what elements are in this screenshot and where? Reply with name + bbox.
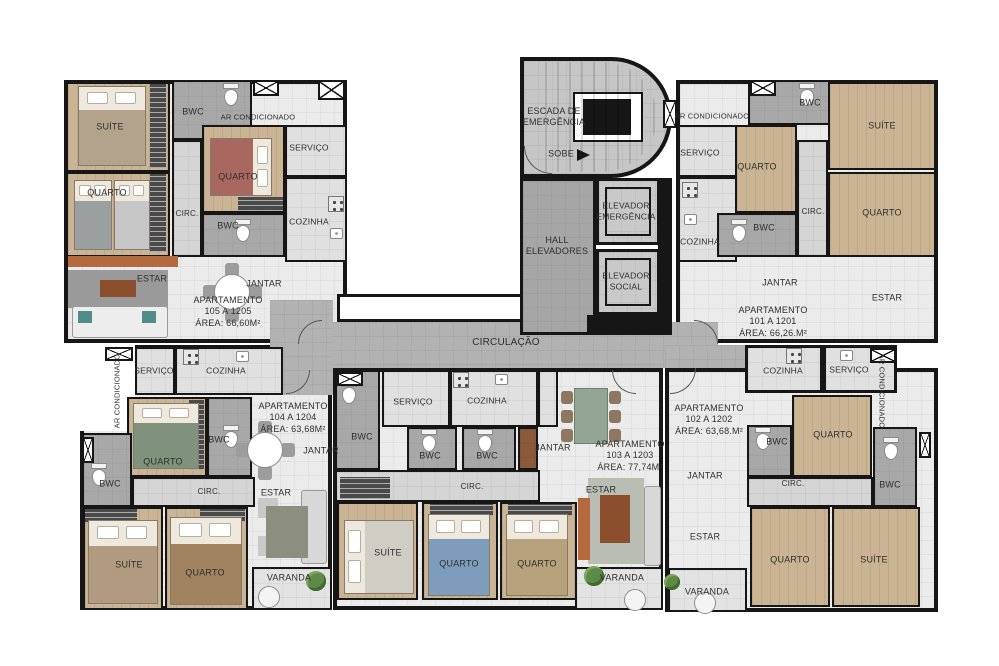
bed-pillow — [126, 526, 148, 539]
hatch-box — [870, 348, 896, 363]
bed-blanket — [429, 539, 489, 595]
bed — [344, 520, 414, 594]
rug — [266, 506, 308, 558]
table — [258, 586, 280, 608]
room-cozinha — [745, 345, 823, 393]
sink — [684, 214, 697, 225]
bed-pillow — [514, 520, 533, 533]
bed — [74, 180, 112, 250]
bed-pillow — [169, 408, 189, 418]
stove — [183, 349, 199, 365]
room-servico — [382, 370, 450, 427]
chair — [609, 391, 621, 404]
wall — [658, 178, 672, 335]
hatch-box — [105, 347, 133, 361]
sink — [495, 374, 508, 385]
bed-pillow — [461, 520, 480, 533]
room-nook — [538, 370, 558, 427]
room-bwc — [717, 213, 797, 257]
hatch-box — [82, 437, 94, 463]
bed-blanket — [507, 539, 567, 595]
bed-pillow — [87, 92, 108, 104]
bed — [133, 403, 199, 469]
hatch-box — [663, 100, 677, 128]
room-circ — [172, 140, 202, 257]
room-cozinha — [285, 177, 347, 262]
dining-table — [214, 274, 250, 310]
stove — [453, 372, 469, 388]
bed-pillow — [436, 520, 455, 533]
chair — [561, 391, 573, 404]
room-servico — [678, 125, 737, 177]
bed — [78, 86, 146, 166]
bed-pillow — [94, 185, 106, 196]
chair — [609, 410, 621, 423]
bed-pillow — [348, 530, 360, 553]
bed — [428, 514, 490, 596]
rug — [100, 280, 136, 297]
plant — [584, 566, 604, 586]
bed — [210, 138, 272, 196]
wardrobe — [150, 174, 166, 252]
bed — [506, 514, 568, 596]
bed-blanket — [115, 201, 149, 249]
corridor-entry-right — [665, 345, 745, 368]
chair — [225, 308, 239, 322]
sink — [330, 228, 343, 239]
stove — [682, 182, 698, 198]
bed-pillow — [209, 523, 231, 537]
room-servico — [135, 347, 175, 395]
bed-pillow — [539, 520, 558, 533]
cushion — [78, 311, 92, 323]
bed-pillow — [119, 185, 130, 196]
plant — [306, 571, 326, 591]
chair — [258, 466, 272, 480]
rug — [600, 495, 630, 543]
table — [624, 589, 646, 611]
room-quarto — [750, 507, 830, 607]
bed-pillow — [133, 185, 144, 196]
sofa — [644, 486, 661, 566]
bed-blanket — [171, 544, 241, 604]
wardrobe — [340, 477, 390, 499]
bed — [170, 517, 242, 605]
hatch-box — [750, 80, 776, 96]
table — [694, 592, 716, 614]
bed-pillow — [348, 560, 360, 583]
room-circ — [747, 477, 873, 507]
bed-blanket — [79, 110, 145, 165]
sink — [236, 351, 249, 362]
stove — [328, 196, 344, 212]
bed-blanket — [89, 546, 157, 603]
room-circ — [797, 140, 828, 257]
cushion — [142, 311, 156, 323]
bed — [114, 180, 150, 250]
lightwell — [337, 294, 523, 322]
stove — [786, 348, 802, 364]
floor-plan: ESCADA DE EMERGÊNCIASOBEHALL ELEVADORESE… — [0, 0, 999, 666]
hatch-box — [253, 80, 279, 96]
room-suite — [832, 507, 920, 607]
dining-table — [574, 388, 608, 444]
sideboard — [68, 256, 178, 267]
chair — [561, 410, 573, 423]
elevator-emergencia-cab — [605, 187, 651, 236]
bed-pillow — [79, 185, 91, 196]
bed-pillow — [142, 408, 162, 418]
bed-pillow — [97, 526, 119, 539]
chair — [281, 443, 295, 457]
room-quarto — [828, 172, 936, 257]
chair — [248, 285, 262, 299]
hatch-box — [919, 432, 931, 458]
room-quarto — [792, 395, 872, 477]
sink — [840, 350, 853, 361]
room-servico — [285, 125, 347, 177]
plant — [664, 574, 680, 590]
cabinet — [578, 498, 590, 560]
bed-pillow — [179, 523, 201, 537]
elevator-social-cab — [605, 258, 651, 306]
sobe-arrow-icon — [577, 149, 590, 161]
bed — [88, 520, 158, 604]
chair — [609, 429, 621, 442]
bed-blanket — [134, 423, 198, 468]
hall-elevadores — [520, 178, 596, 335]
dining-table — [247, 432, 283, 468]
bed-pillow — [257, 146, 268, 164]
bed-blanket — [75, 201, 111, 249]
bed-blanket — [211, 139, 253, 195]
wardrobe — [238, 197, 283, 211]
wall — [587, 315, 672, 335]
bed-blanket — [365, 521, 413, 593]
chair — [561, 429, 573, 442]
hatch-box — [318, 80, 345, 100]
bed-pillow — [115, 92, 136, 104]
room-suite — [828, 82, 936, 170]
hatch-box — [337, 372, 363, 386]
room-circ — [132, 477, 255, 507]
stair-treads — [545, 62, 657, 172]
wardrobe — [150, 84, 166, 168]
cabinet — [518, 427, 538, 470]
bed-pillow — [257, 169, 268, 187]
